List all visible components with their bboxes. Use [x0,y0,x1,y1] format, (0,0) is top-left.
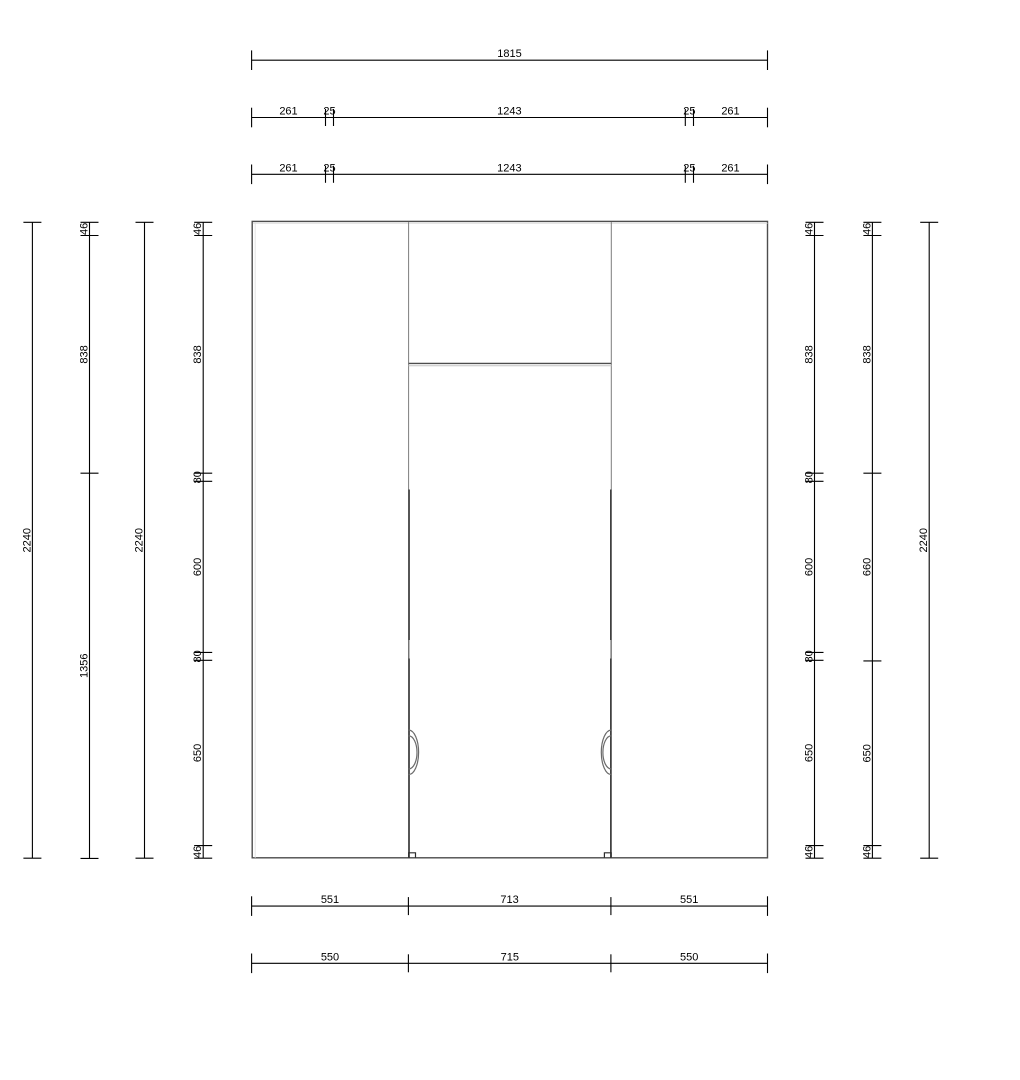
svg-text:25: 25 [683,106,695,118]
svg-text:713: 713 [500,894,518,906]
svg-text:838: 838 [79,345,91,363]
svg-text:550: 550 [321,951,339,963]
svg-text:1243: 1243 [497,106,521,118]
svg-text:261: 261 [721,106,739,118]
svg-text:46: 46 [804,223,816,235]
svg-text:1815: 1815 [497,48,521,60]
svg-text:25: 25 [683,162,695,174]
svg-text:2240: 2240 [134,528,146,552]
svg-text:1243: 1243 [497,162,521,174]
svg-text:80: 80 [192,650,204,662]
svg-text:2240: 2240 [918,528,930,552]
svg-text:551: 551 [680,894,698,906]
svg-text:261: 261 [279,162,297,174]
svg-text:46: 46 [192,223,204,235]
svg-text:650: 650 [804,744,816,762]
svg-text:660: 660 [861,558,873,576]
svg-text:550: 550 [680,951,698,963]
svg-text:25: 25 [323,162,335,174]
svg-text:80: 80 [804,650,816,662]
svg-text:551: 551 [321,894,339,906]
svg-text:2240: 2240 [21,528,33,552]
svg-text:80: 80 [804,471,816,483]
svg-text:838: 838 [804,345,816,363]
svg-text:261: 261 [721,162,739,174]
svg-text:46: 46 [804,846,816,858]
svg-text:838: 838 [861,345,873,363]
svg-text:261: 261 [279,106,297,118]
svg-text:25: 25 [323,106,335,118]
svg-text:46: 46 [861,846,873,858]
svg-text:600: 600 [804,558,816,576]
svg-text:46: 46 [861,223,873,235]
svg-text:650: 650 [861,744,873,762]
svg-text:1356: 1356 [79,654,91,678]
svg-text:46: 46 [79,223,91,235]
svg-text:600: 600 [192,558,204,576]
svg-text:715: 715 [501,951,519,963]
svg-text:80: 80 [192,471,204,483]
svg-text:838: 838 [192,345,204,363]
svg-text:650: 650 [192,744,204,762]
svg-text:46: 46 [192,846,204,858]
